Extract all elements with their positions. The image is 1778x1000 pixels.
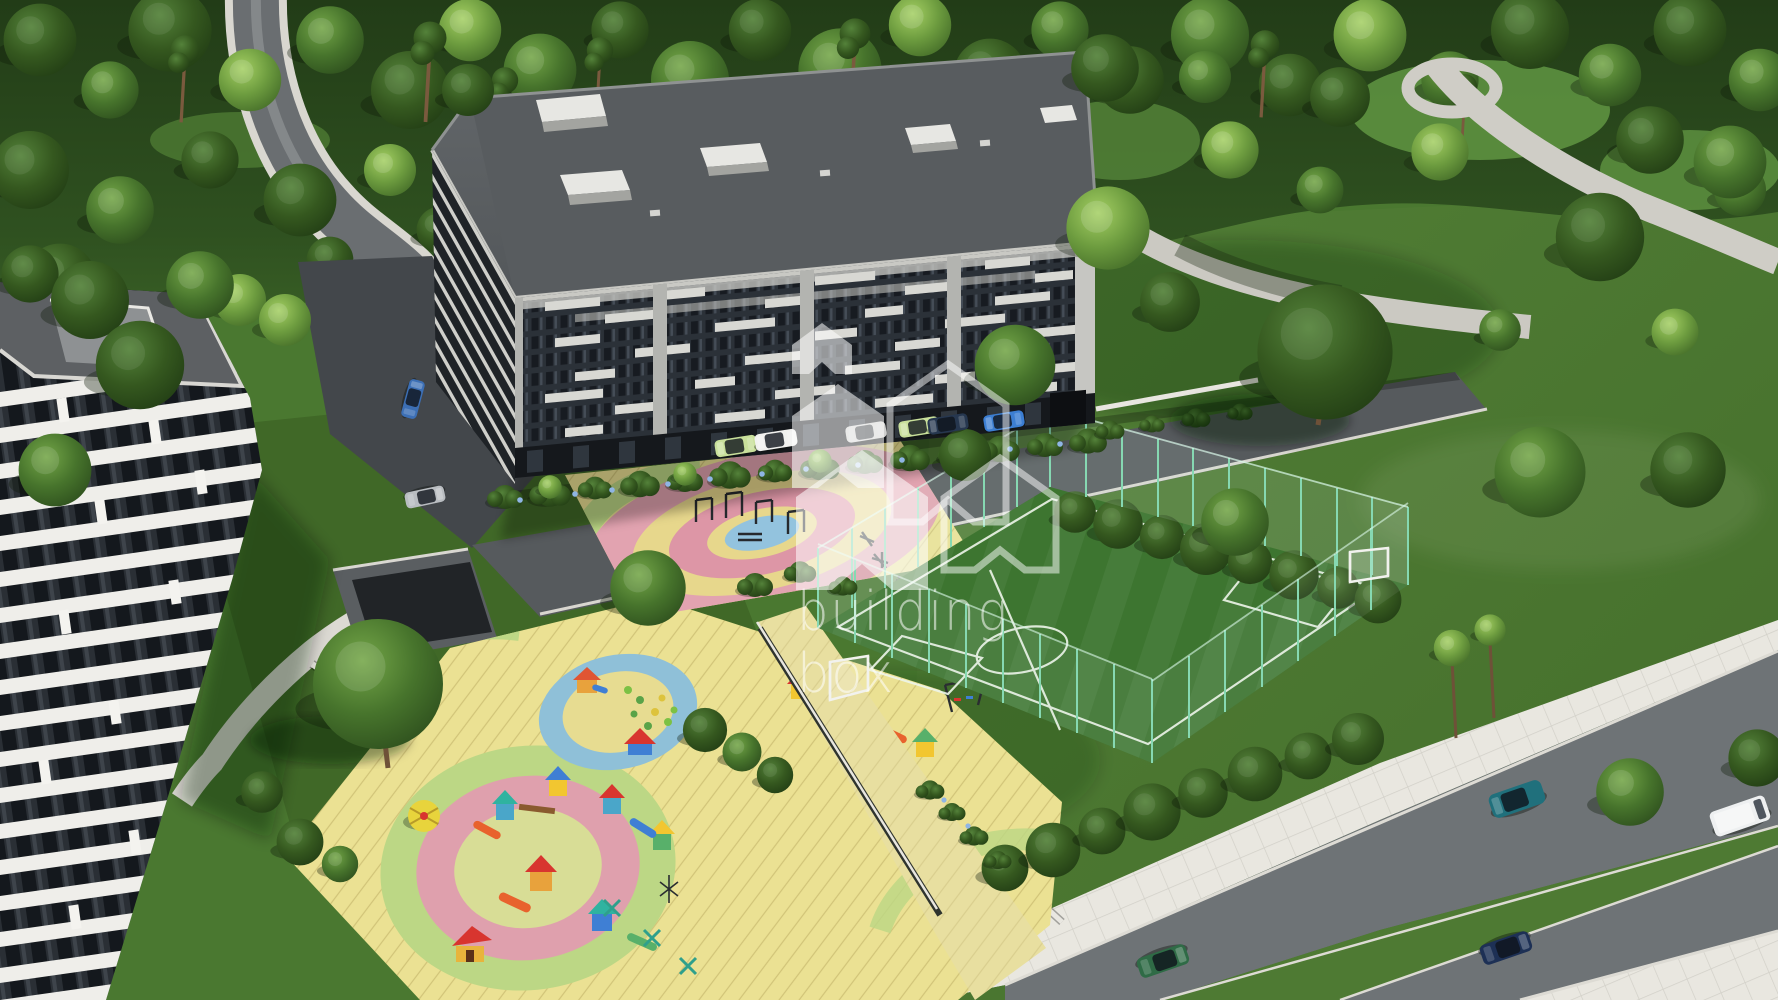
entrance-arch (1050, 390, 1086, 427)
render-canvas: building box (0, 0, 1778, 1000)
watermark-brand-line2: box (797, 642, 895, 705)
goal-northeast (1350, 548, 1388, 582)
watermark-brand-line1: building (797, 580, 1009, 643)
